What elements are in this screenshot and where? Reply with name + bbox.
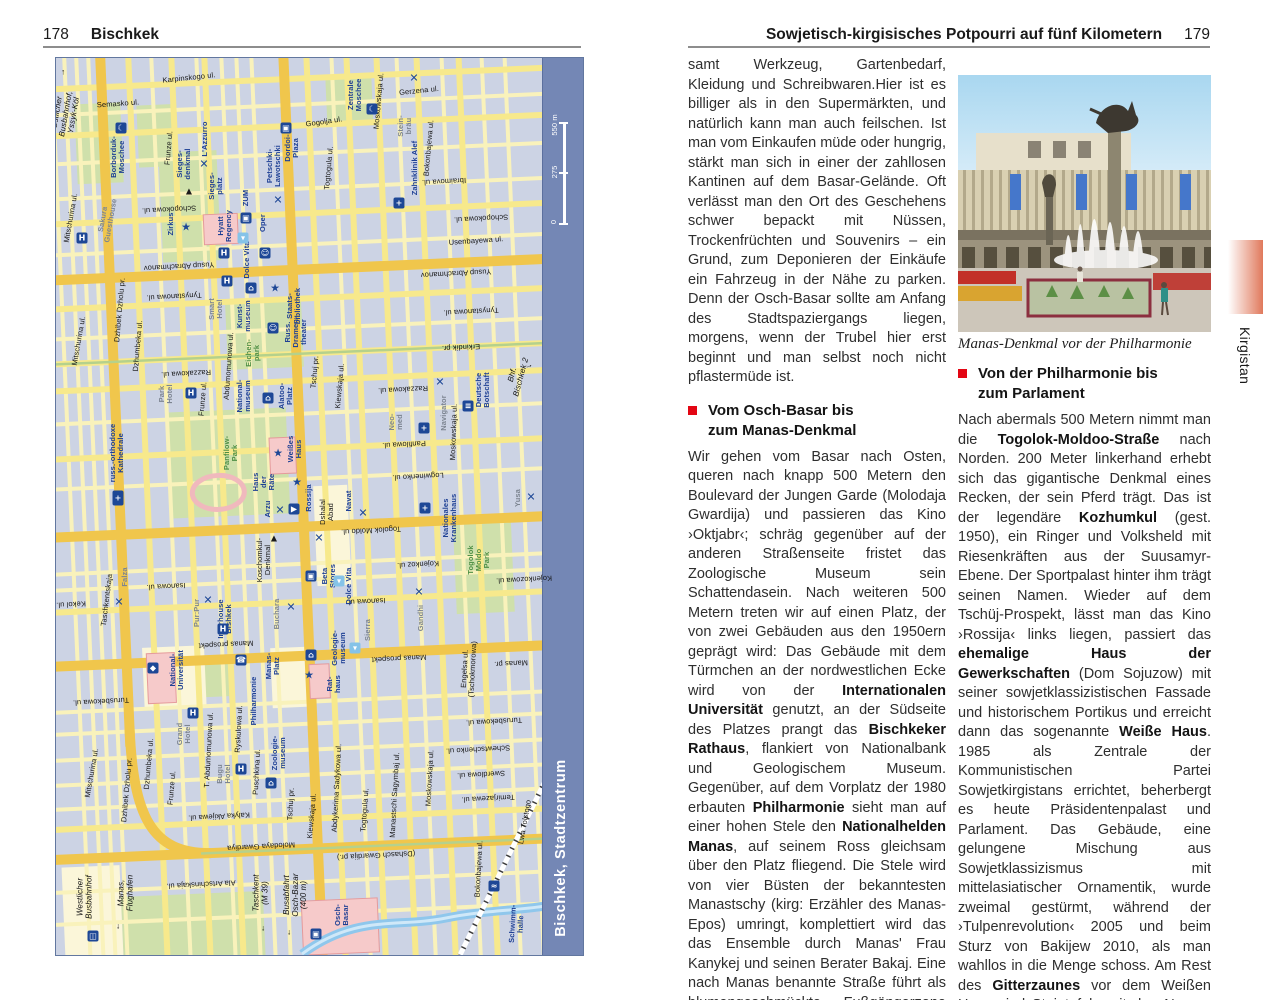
map-label: Manas prospekt <box>198 639 253 650</box>
left-header-title: Bischkek <box>91 26 159 43</box>
map-label: Zentrale Moschee <box>347 79 363 112</box>
monument-icon: ▲ <box>184 187 195 198</box>
map-label: ZUM <box>242 190 250 207</box>
header-rule-right <box>688 46 1210 48</box>
museum-icon: ⌂ <box>263 393 274 404</box>
monument-icon: ▲ <box>269 534 280 545</box>
map-label: Togolok Moldo ul. <box>341 524 401 535</box>
church-icon: + <box>113 491 124 506</box>
restaurant-icon: ✕ <box>272 195 285 208</box>
map-label: Taschkent (M 39) <box>252 874 269 911</box>
text-column-1: samt Werkzeug, Gartenbedarf, Kleidung un… <box>688 56 946 1000</box>
restaurant-icon: ✕ <box>198 159 211 172</box>
swim-icon: ≈ <box>489 881 500 892</box>
map-label: Zirkus <box>167 212 175 235</box>
map-label: Panfilow- Park <box>223 436 239 470</box>
map-label: Smart Hotel <box>208 298 224 320</box>
restaurant-icon: ✕ <box>313 533 326 546</box>
map-label: Isanowa ul. <box>146 581 185 591</box>
shop-icon: ▣ <box>241 213 252 224</box>
map-label: Sieges- platz <box>208 172 224 199</box>
map-label: Tynystanowa ul. <box>443 306 499 317</box>
map-label: Grand Hotel <box>176 723 192 746</box>
shop-icon: ▣ <box>306 571 317 582</box>
masks-icon: ☺ <box>260 248 271 259</box>
map-label: Navigator <box>440 395 448 431</box>
page-number-left: 178 <box>43 26 69 43</box>
restaurant-icon: ✕ <box>413 587 426 600</box>
map-label: Weißes Haus <box>287 436 303 463</box>
star-icon: ★ <box>272 448 285 461</box>
shop-icon: ▣ <box>281 123 292 134</box>
cafe-icon: ▾ <box>350 643 361 654</box>
header-rule-left <box>43 46 581 48</box>
right-header-title: Sowjetisch-kirgisisches Potpourri auf fü… <box>766 26 1162 43</box>
city-map-bishkek: Karpinskogo ul.Semasko ul.Gogolja ul.Ger… <box>55 57 584 956</box>
map-label: Dordoi- Plaza <box>284 134 300 161</box>
university-icon: ◆ <box>148 663 159 674</box>
section-heading-osch-basar: Vom Osch-Basar biszum Manas-Denkmal <box>688 401 946 441</box>
museum-icon: ⌂ <box>246 283 257 294</box>
map-label: Osch- Basar <box>334 904 350 926</box>
map-label: Logwinenko ul. <box>392 471 444 482</box>
bus-icon: ◫ <box>88 931 99 942</box>
section-heading-philharmonie: Von der Philharmonie biszum Parlament <box>958 364 1211 404</box>
left-running-head: 178Bischkek <box>43 26 159 44</box>
star-icon: ★ <box>303 670 316 683</box>
map-label: Bischkek, Stadtzentrum <box>554 759 570 937</box>
map-label: Navat <box>345 491 353 512</box>
map-label: Razzakowa ul. <box>378 384 428 395</box>
flag-icon: ≡ <box>463 401 474 412</box>
map-label: Turusbekowa ul. <box>73 695 130 706</box>
map-label: Manas- Platz <box>265 653 281 679</box>
photo-manas-monument <box>958 75 1211 332</box>
map-label: Petschki- Lawotschki <box>266 145 282 187</box>
hotel-icon: H <box>186 388 197 399</box>
masks-icon: ☺ <box>268 323 279 334</box>
restaurant-icon: ✕ <box>434 377 447 390</box>
map-label: Buchara <box>273 599 281 630</box>
restaurant-icon: ✕ <box>274 505 287 518</box>
cinema-icon: ▶ <box>289 504 300 515</box>
red-square-bullet <box>958 369 967 378</box>
museum-icon: ⌂ <box>306 650 317 661</box>
map-label: Rat- haus <box>326 675 342 693</box>
restaurant-icon: ✕ <box>202 595 215 608</box>
map-label: Manas pr. <box>494 658 528 668</box>
map-label: Eichen- park <box>245 339 261 367</box>
map-label: Philharmonie <box>250 677 258 726</box>
map-label: Kekol ul. <box>56 599 86 609</box>
map-label: Oper <box>259 214 267 232</box>
map-label: Manas, Flughafen <box>117 875 134 911</box>
hotel-icon: H <box>222 276 233 287</box>
star-icon: ★ <box>180 222 193 235</box>
clinic-icon: + <box>420 503 431 514</box>
map-label: Swerdlowa ul. <box>457 769 505 780</box>
map-label: Tynystanowa ul. <box>146 291 202 302</box>
photo-caption: Manas-Denkmal vor der Philharmonie <box>958 336 1211 353</box>
cafe-icon: ▾ <box>238 233 249 244</box>
cafe-icon: ▾ <box>334 576 345 587</box>
map-label: Tschuj pr. <box>286 787 296 820</box>
map-label: National- Universität <box>169 650 185 690</box>
map-label: Kunst- museum <box>236 300 252 331</box>
map-label: L'Azzurro <box>201 121 209 156</box>
text-column-2: Von der Philharmonie biszum Parlament Na… <box>958 364 1211 1000</box>
restaurant-icon: ✕ <box>357 508 370 521</box>
restaurant-icon: ✕ <box>525 492 538 505</box>
map-label: ↓ <box>261 925 265 934</box>
red-square-bullet <box>688 406 697 415</box>
map-label: 275 <box>551 166 559 179</box>
scale-tick <box>559 122 568 124</box>
map-label: Westlicher Busbahnhof <box>76 875 93 919</box>
map-label: Geologie- museum <box>331 630 347 666</box>
map-label: Stein- bräu <box>397 115 413 136</box>
map-label: Neo- med <box>388 413 404 430</box>
map-label: Manas prospekt <box>371 653 426 664</box>
chapter-tab-gradient <box>1228 240 1263 314</box>
map-label: Rossija <box>305 484 313 511</box>
intro-paragraph: samt Werkzeug, Gartenbedarf, Kleidung un… <box>688 56 946 388</box>
scale-tick <box>559 172 568 174</box>
map-label: Alatoo- Platz <box>278 383 294 410</box>
map-label: Zahnklinik Alef <box>411 141 419 196</box>
right-running-head: Sowjetisch-kirgisisches Potpourri auf fü… <box>766 26 1210 44</box>
map-label: Russ. Dramen- theater <box>284 316 308 347</box>
map-label: Pur:Pur <box>193 599 201 627</box>
map-label: Hyatt Regency <box>217 210 233 242</box>
chapter-tab-label: Kirgistan <box>1231 327 1253 417</box>
map-label: Deutsche Botschaft <box>475 372 491 408</box>
mosque-icon: ☾ <box>116 123 127 134</box>
book-spread: 178Bischkek Sowjetisch-kirgisisches Potp… <box>0 0 1263 1000</box>
map-label: Park Hotel <box>158 384 174 403</box>
map-label: Bugu Hotel <box>216 764 232 784</box>
star-icon: ★ <box>269 283 282 296</box>
map-label: Dolce Vita <box>243 241 251 278</box>
map-label: Zoologie- museum <box>271 736 287 771</box>
map-label: Arzu <box>264 500 272 517</box>
hotel-icon: H <box>236 764 247 775</box>
map-label: Borborduk- Moschee <box>110 136 126 178</box>
map-label: Kojenkozowa ul. <box>496 573 552 584</box>
hotel-icon: H <box>219 248 230 259</box>
hotel-icon: H <box>188 708 199 719</box>
map-label: Panfilowa ul. <box>382 439 426 449</box>
map-label: Schwimm- halle <box>508 904 526 943</box>
section-heading-text: Von der Philharmonie biszum Parlament <box>978 364 1158 404</box>
body-paragraph-2: Nach abermals 500 Metern nimmt man die T… <box>958 411 1211 1000</box>
map-label: 550 m <box>551 114 559 135</box>
body-paragraph-1: Wir gehen vom Basar nach Osten, queren n… <box>688 448 946 1000</box>
map-label: ↓ <box>287 929 291 938</box>
map-label: Sierra <box>364 619 372 641</box>
scale-tick <box>559 223 568 225</box>
map-label: Kojenkoz ul. <box>397 559 439 569</box>
map-label: Razzakowa ul. <box>161 368 211 379</box>
page-number-right: 179 <box>1184 26 1210 43</box>
map-label: Gandhi <box>417 605 425 631</box>
map-label: Nationales Krankenhaus <box>442 494 458 543</box>
star-icon: ★ <box>291 477 304 490</box>
map-label: Yusa <box>514 489 522 507</box>
map-label: Schopokowa ul. <box>454 213 509 224</box>
clinic-icon: + <box>419 423 430 434</box>
map-label: Dolce Vita <box>345 567 353 604</box>
map-label: Sieges- denkmal <box>176 148 192 179</box>
clinic-icon: + <box>394 198 405 209</box>
map-label: ↓ <box>116 923 120 932</box>
hotel-icon: H <box>77 233 88 244</box>
mosque-icon: ☾ <box>367 104 378 115</box>
shop-icon: ▣ <box>311 929 322 940</box>
map-label: Busabfahrt Osch-Bazar (400 m) <box>283 873 309 916</box>
map-label: ↑ <box>61 69 65 78</box>
map-label: Togolok Moldo Park <box>467 545 491 574</box>
map-label: Haus der Räte <box>252 473 276 492</box>
map-label: National- museum <box>236 380 252 413</box>
map-label: Ibraimova ul. <box>422 176 467 186</box>
map-label: Engelsa ul. (Tschokmorowa) <box>459 640 478 697</box>
hotel-icon: H <box>218 624 229 635</box>
map-label: Turusbekowa ul. <box>466 715 523 726</box>
map-label: Falza <box>121 567 129 586</box>
section-heading-text: Vom Osch-Basar biszum Manas-Denkmal <box>708 401 856 441</box>
map-label: 0 <box>550 220 558 224</box>
restaurant-icon: ✕ <box>408 73 421 86</box>
restaurant-icon: ✕ <box>285 602 298 615</box>
museum-icon: ⌂ <box>266 778 277 789</box>
map-label: Erkindik pr. <box>442 342 481 352</box>
phone-icon: ☎ <box>236 655 247 666</box>
map-label: Temirjazewa ul. <box>461 793 515 804</box>
restaurant-icon: ✕ <box>113 597 126 610</box>
map-label: russ.-orthodoxe Kathedrale <box>109 424 125 483</box>
map-label: Dshalal Abad <box>319 499 335 525</box>
